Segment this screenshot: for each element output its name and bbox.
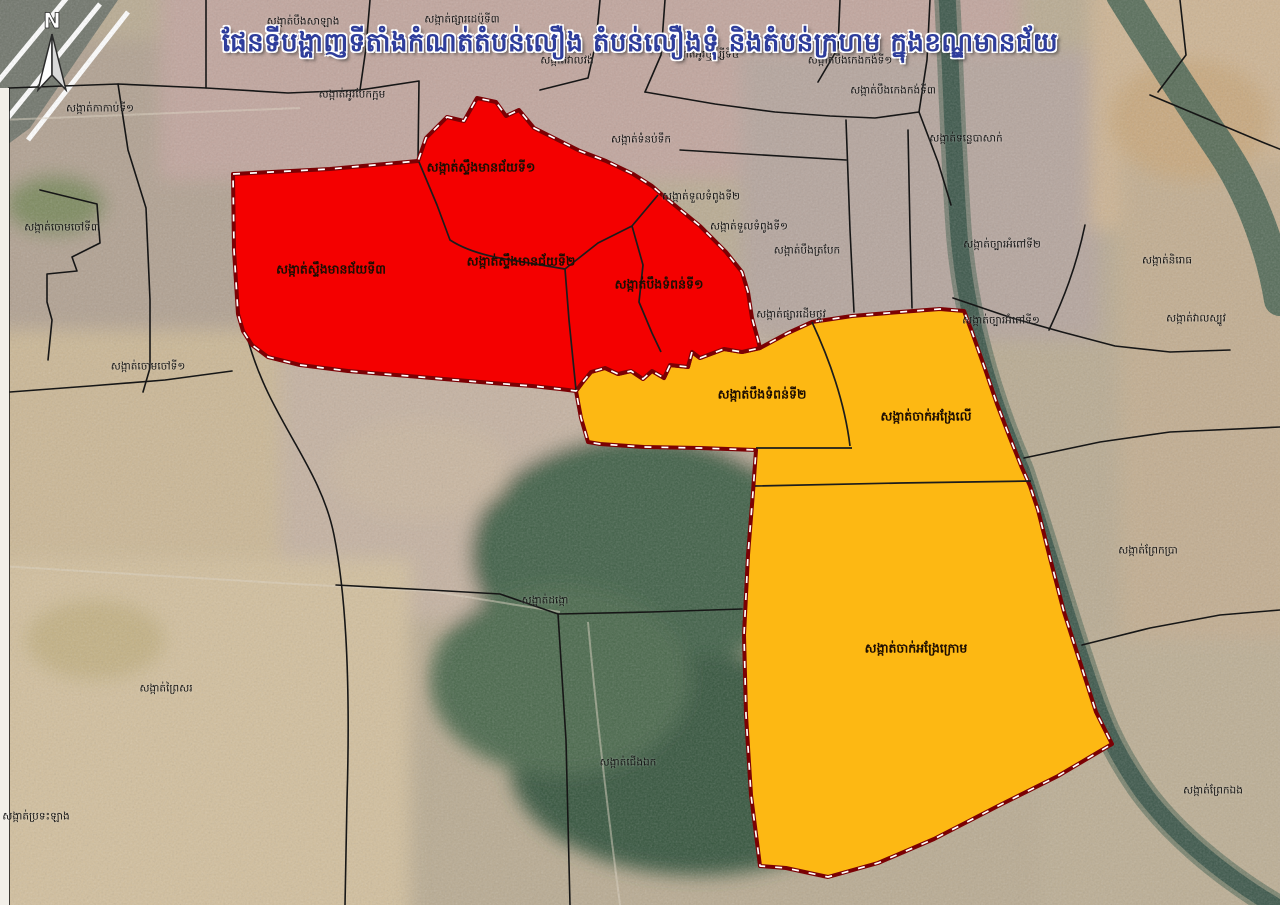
sangkat-label: សង្កាត់ដង្កោ (522, 595, 569, 610)
sangkat-label: សង្កាត់ចោមចៅទី៣ (24, 222, 100, 237)
map-title: ផែនទីបង្ហាញទីតាំងកំណត់តំបន់លឿង តំបន់លឿងទ… (222, 26, 1058, 64)
sangkat-label: សង្កាត់បឹងត្របែក (774, 245, 840, 260)
sangkat-label: សង្កាត់និរោធ (1142, 255, 1192, 270)
page-margin (0, 88, 9, 905)
sangkat-label: សង្កាត់កាកាប់ទី១ (66, 103, 134, 118)
sangkat-label: សង្កាត់ព្រែកប្រា (1118, 545, 1178, 560)
zone-label: សង្កាត់ស្ទឹងមានជ័យទី៣ (276, 262, 386, 281)
map-labels: សង្កាត់ស្ទឹងមានជ័យទី១សង្កាត់ស្ទឹងមានជ័យទ… (0, 0, 1280, 905)
zone-label: សង្កាត់ចាក់អង្រែក្រោម (865, 641, 968, 660)
sangkat-label: សង្កាត់ផ្សារដើមថ្កូវ (756, 309, 826, 324)
sangkat-label: សង្កាត់ទួលទំពូងទី២ (662, 191, 740, 206)
sangkat-label: សង្កាត់ទំនប់ទឹក (611, 134, 671, 149)
sangkat-label: សង្កាត់ព្រែកឯង (1183, 785, 1243, 800)
zone-label: សង្កាត់បឹងទំពន់ទី២ (718, 387, 807, 406)
sangkat-label: សង្កាត់ជើងឯក (600, 757, 657, 772)
zone-label: សង្កាត់បឹងទំពន់ទី១ (615, 277, 704, 296)
sangkat-label: សង្កាត់ប្រទះឡាង (2, 811, 69, 826)
sangkat-label: សង្កាត់អូរបែកក្អម (319, 89, 386, 104)
map-canvas: N ផែនទីបង្ហាញទីតាំងកំណត់តំបន់លឿង តំបន់លឿ… (0, 0, 1280, 905)
sangkat-label: សង្កាត់ទួលទំពូងទី១ (710, 221, 788, 236)
zone-label: សង្កាត់ស្ទឹងមានជ័យទី១ (427, 160, 536, 179)
zone-label: សង្កាត់ស្ទឹងមានជ័យទី២ (467, 254, 576, 273)
zone-label: សង្កាត់ចាក់អង្រែលើ (880, 409, 971, 428)
sangkat-label: សង្កាត់ចោមចៅទី១ (111, 361, 186, 376)
sangkat-label: សង្កាត់ព្រៃសរ (139, 683, 192, 698)
sangkat-label: សង្កាត់ច្បារអំពៅទី១ (962, 315, 1040, 330)
sangkat-label: សង្កាត់បឹងកេងកង់ទី៣ (850, 85, 936, 100)
sangkat-label: សង្កាត់ច្បារអំពៅទី២ (963, 239, 1041, 254)
sangkat-label: សង្កាត់ទន្លេបាសាក់ (929, 133, 1002, 148)
sangkat-label: សង្កាត់វាលស្បូវ (1166, 313, 1226, 328)
